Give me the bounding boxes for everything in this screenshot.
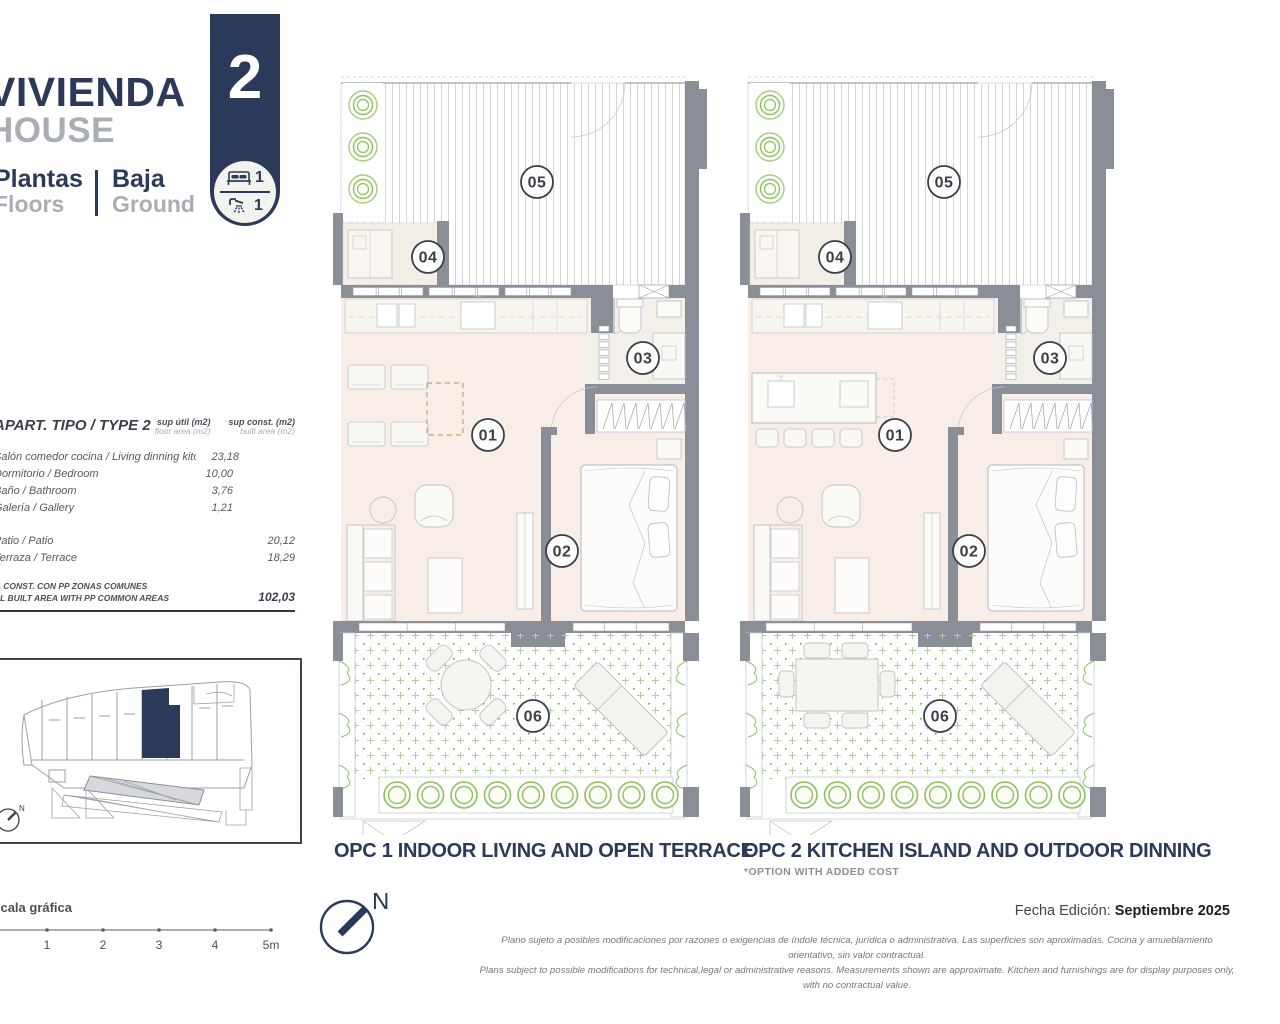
table-row: Dormitorio / Bedroom10,00 [0, 466, 295, 483]
floor-value-en: Ground [112, 192, 195, 217]
opc2-note: *OPTION WITH ADDED COST [744, 866, 899, 878]
title-es: VIVIENDA [0, 72, 186, 113]
area-table-title: APART. TIPO / TYPE 2 [0, 417, 151, 434]
room-label-03: 03 [627, 342, 659, 374]
disclaimer: Plano sujeto a posibles modificaciones p… [478, 934, 1236, 993]
unit-number: 2 [210, 42, 280, 113]
svg-text:03: 03 [634, 351, 653, 368]
table-row: Terraza / Terrace18,29 [0, 550, 295, 567]
col2-subheader: built area (m2) [228, 427, 295, 437]
floors-row: Plantas Floors Baja Ground [0, 166, 195, 218]
table-row: Baño / Bathroom3,76 [0, 483, 295, 500]
edition-date: Fecha Edición: Septiembre 2025 [898, 903, 1230, 919]
svg-text:4: 4 [212, 938, 219, 952]
table-row: Galería / Gallery1,21 [0, 500, 295, 517]
total-label-line1: P. CONST. CON PP ZONAS COMUNES [0, 581, 225, 592]
unit-tab: 2 1 1 [210, 14, 280, 226]
room-label-03: 03 [1034, 342, 1066, 374]
svg-text:05: 05 [528, 175, 547, 192]
table-row: Patio / Patio20,12 [0, 533, 295, 550]
svg-text:05: 05 [935, 175, 954, 192]
col1-subheader: floor area (m2) [155, 427, 211, 437]
north-arrow: N [314, 893, 400, 961]
svg-text:04: 04 [826, 250, 845, 267]
room-label-06: 06 [517, 700, 549, 732]
table-spacer [0, 517, 295, 533]
site-plan-north-icon: N [0, 804, 25, 831]
table-row: Salón comedor cocina / Living dinning ki… [0, 449, 295, 466]
scale-bar: 12345m [0, 918, 290, 954]
room-label-02: 02 [953, 535, 985, 567]
site-plan-drawing: N [0, 660, 296, 838]
svg-text:03: 03 [1041, 351, 1060, 368]
opc2-title: OPC 2 KITCHEN ISLAND AND OUTDOOR DINNING [743, 840, 1211, 863]
room-label-02: 02 [546, 535, 578, 567]
edition-label: Fecha Edición: [1015, 903, 1111, 919]
svg-text:2: 2 [100, 938, 107, 952]
floor-value-es: Baja [112, 166, 195, 192]
bathrooms-count: 1 [254, 197, 263, 215]
svg-text:06: 06 [931, 709, 950, 726]
room-label-06: 06 [924, 700, 956, 732]
total-value: 102,03 [225, 590, 295, 604]
area-table: APART. TIPO / TYPE 2 sup útil (m2) floor… [0, 417, 295, 612]
svg-text:N: N [372, 893, 389, 915]
svg-text:02: 02 [960, 544, 979, 561]
brand-block: VIVIENDA HOUSE [0, 72, 186, 150]
site-plan-unit-highlight [142, 688, 180, 758]
room-label-01: 01 [472, 419, 504, 451]
floor-plan-opc2: 010203040506 [740, 73, 1115, 835]
svg-text:3: 3 [156, 938, 163, 952]
shower-icon [227, 198, 251, 215]
room-label-04: 04 [412, 241, 444, 273]
room-label-01: 01 [879, 419, 911, 451]
bed-icon [226, 171, 252, 186]
unit-badge: 1 1 [214, 161, 276, 223]
svg-text:02: 02 [553, 544, 572, 561]
floors-label-en: Floors [0, 192, 83, 217]
svg-text:01: 01 [479, 428, 498, 445]
edition-value: Septiembre 2025 [1115, 903, 1230, 919]
floors-divider [95, 170, 98, 216]
svg-text:1: 1 [44, 938, 51, 952]
room-label-05: 05 [928, 166, 960, 198]
svg-text:5m: 5m [263, 938, 280, 952]
svg-text:01: 01 [886, 428, 905, 445]
bedrooms-count: 1 [255, 169, 264, 187]
room-label-04: 04 [819, 241, 851, 273]
opc1-title: OPC 1 INDOOR LIVING AND OPEN TERRACE [334, 840, 754, 863]
room-label-05: 05 [521, 166, 553, 198]
floor-plan-opc1: 010203040506 [333, 73, 708, 835]
site-plan-box: N [0, 658, 302, 844]
disclaimer-en: Plans subject to possible modifications … [478, 964, 1236, 994]
disclaimer-es: Plano sujeto a posibles modificaciones p… [478, 934, 1236, 964]
svg-text:06: 06 [524, 709, 543, 726]
area-table-total: P. CONST. CON PP ZONAS COMUNES AL BUILT … [0, 581, 295, 612]
svg-text:N: N [19, 804, 25, 813]
svg-text:04: 04 [419, 250, 438, 267]
area-table-rows: Salón comedor cocina / Living dinning ki… [0, 449, 295, 567]
floors-label-es: Plantas [0, 166, 83, 192]
total-label-line2: AL BUILT AREA WITH PP COMMON AREAS [0, 593, 225, 604]
scale-label: escala gráfica [0, 900, 72, 915]
title-en: HOUSE [0, 113, 186, 150]
